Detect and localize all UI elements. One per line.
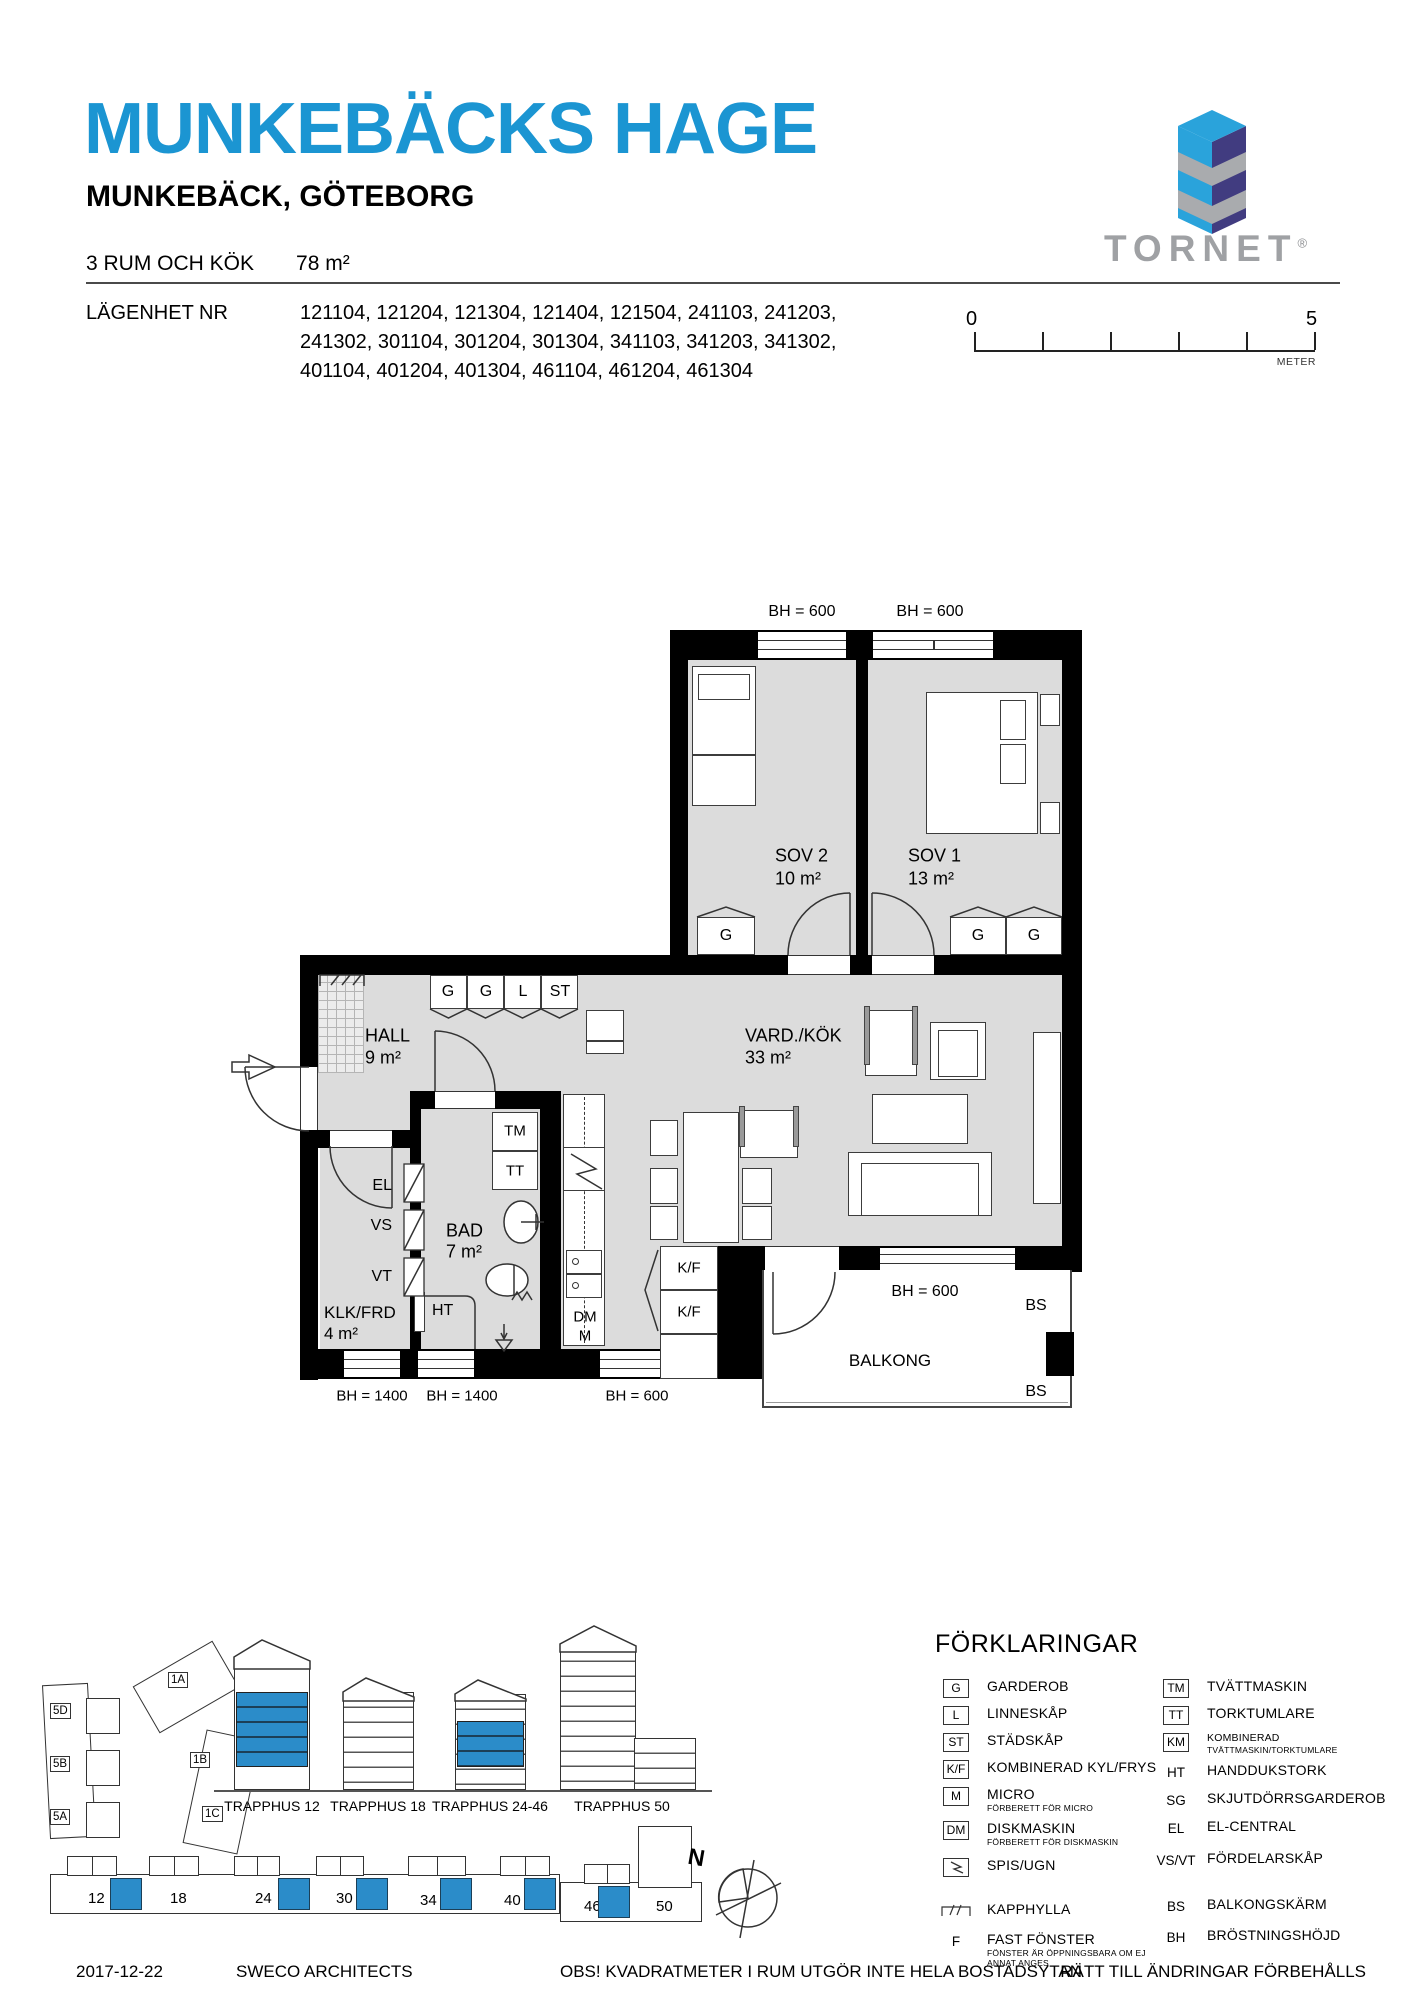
floorplan-sheet: { "header": { "title": "MUNKEBÄCKS HAGE"… [0, 0, 1414, 2000]
plan-label: BH = 1400 [336, 1388, 407, 1405]
site-block-label: 1A [168, 1672, 188, 1688]
legend-sublabel: TVÄTTMASKIN/TORKTUMLARE [1207, 1745, 1338, 1755]
legend-symbol-box: K/F [943, 1760, 969, 1779]
nightstand [1040, 694, 1060, 726]
plan-label: VT [372, 1268, 392, 1286]
plan-label: G [1028, 927, 1040, 945]
legend-text: KOMBINERADTVÄTTMASKIN/TORKTUMLARE [1207, 1732, 1338, 1755]
window-sov1 [873, 632, 993, 658]
plan-label: 13 m² [908, 869, 954, 890]
legend-row: K/FKOMBINERAD KYL/FRYS [935, 1759, 1157, 1779]
plan-label: TT [506, 1163, 524, 1180]
legend-text: KAPPHYLLA [987, 1901, 1071, 1917]
apartment-numbers-line1: 121104, 121204, 121304, 121404, 121504, … [300, 302, 836, 325]
plan-label: BH = 600 [768, 603, 835, 621]
chair [650, 1168, 678, 1204]
legend-row: KAPPHYLLA [935, 1901, 1157, 1921]
legend-label: SPIS/UGN [987, 1857, 1056, 1873]
scale-line [974, 350, 1315, 352]
apartment-type: 3 RUM OCH KÖK [86, 252, 254, 276]
hall-table [586, 1010, 624, 1054]
legend-text: KOMBINERAD KYL/FRYS [987, 1759, 1156, 1775]
bed-line [693, 754, 755, 756]
scale-start: 0 [966, 308, 977, 331]
st-symbol: ST [935, 1732, 977, 1752]
plan-label: VARD./KÖK [745, 1026, 842, 1047]
legend-label: DISKMASKIN [987, 1820, 1118, 1836]
apartment-type-row: 3 RUM OCH KÖK 78 m² [86, 252, 350, 276]
footprint-strip [560, 1882, 702, 1922]
scale-tick [1178, 332, 1180, 350]
apartment-numbers-line3: 401104, 401204, 401304, 461104, 461204, … [300, 360, 753, 383]
highlighted-unit [598, 1886, 630, 1918]
legend-symbol-box: TM [1163, 1679, 1189, 1698]
legend-label: LINNESKÅP [987, 1705, 1067, 1721]
plan-label: 33 m² [745, 1048, 791, 1069]
plan-label: K/F [677, 1260, 700, 1277]
plan-label: 7 m² [446, 1242, 482, 1263]
strip-number: 18 [170, 1890, 187, 1907]
strip-number: 34 [420, 1892, 437, 1909]
legend-row: BHBRÖSTNINGSHÖJD [1155, 1927, 1405, 1947]
legend-text: SPIS/UGN [987, 1857, 1056, 1873]
pillow [1000, 744, 1026, 784]
g-symbol: G [935, 1678, 977, 1698]
legend-sublabel: FÖRBERETT FÖR MICRO [987, 1803, 1093, 1813]
legend-label: SKJUTDÖRRSGARDEROB [1207, 1790, 1386, 1806]
legend-label: BRÖSTNINGSHÖJD [1207, 1927, 1340, 1943]
highlighted-unit [524, 1878, 556, 1910]
l-symbol: L [935, 1705, 977, 1725]
plan-label: L [519, 983, 528, 1001]
counter-dash-line [584, 1097, 585, 1343]
plan-label: DM [573, 1309, 596, 1326]
kapphylla-icon [940, 1902, 972, 1920]
pillow [698, 674, 750, 700]
site-block-label: 5D [50, 1703, 71, 1719]
plan-label: SOV 1 [908, 846, 961, 867]
footer-note: OBS! KVADRATMETER I RUM UTGÖR INTE HELA … [560, 1962, 1082, 1982]
highlighted-unit [278, 1878, 310, 1910]
site-block-label: 1C [202, 1806, 223, 1822]
apartment-numbers-line2: 241302, 301104, 301204, 301304, 341103, … [300, 331, 836, 354]
plan-label: G [720, 927, 732, 945]
legend-sublabel: FÖRBERETT FÖR DISKMASKIN [987, 1837, 1118, 1847]
footer-rights: RÄTT TILL ÄNDRINGAR FÖRBEHÅLLS [1060, 1962, 1366, 1982]
legend-row: TTTORKTUMLARE [1155, 1705, 1405, 1725]
strip-number: 12 [88, 1890, 105, 1907]
wall-bad-kitchen-divider [540, 1091, 561, 1349]
elevation-annex [634, 1738, 696, 1790]
legend-row: VS/VTFÖRDELARSKÅP [1155, 1850, 1405, 1870]
plan-label: BH = 600 [891, 1283, 958, 1301]
elevation-label: TRAPPHUS 18 [330, 1798, 426, 1814]
wall [300, 955, 318, 1067]
legend-text: EL-CENTRAL [1207, 1818, 1296, 1834]
legend-text: SKJUTDÖRRSGARDEROB [1207, 1790, 1386, 1806]
legend-symbol-box: DM [943, 1821, 969, 1840]
door-opening-sov1 [872, 955, 934, 975]
entry-arrow-icon [232, 1055, 275, 1079]
plan-label: BS [1025, 1383, 1046, 1401]
site-building-wing [86, 1802, 120, 1838]
highlighted-floors [236, 1692, 308, 1767]
legend-row: STSTÄDSKÅP [935, 1732, 1157, 1752]
legend-text: BRÖSTNINGSHÖJD [1207, 1927, 1340, 1943]
legend-label: HANDDUKSTORK [1207, 1762, 1327, 1778]
chair [742, 1168, 772, 1204]
spis-symbol [935, 1857, 977, 1877]
tm-symbol: TM [1155, 1678, 1197, 1698]
plan-label: BALKONG [849, 1351, 931, 1371]
door-opening-balcony [765, 1246, 839, 1272]
door-opening-entry [300, 1067, 318, 1130]
legend-text: BALKONGSKÄRM [1207, 1896, 1327, 1912]
legend-text: GARDEROB [987, 1678, 1069, 1694]
legend-row: GGARDEROB [935, 1678, 1157, 1698]
legend-label: GARDEROB [987, 1678, 1069, 1694]
legend-symbol-box: KM [1163, 1733, 1189, 1752]
spis-icon [943, 1858, 969, 1877]
plan-label: VS [371, 1217, 392, 1235]
balcony-screen-post [1046, 1332, 1074, 1376]
legend-label: KOMBINERAD [1207, 1732, 1338, 1744]
legend-right-column: TMTVÄTTMASKINTTTORKTUMLAREKMKOMBINERADTV… [1155, 1678, 1405, 1954]
scale-tick [1042, 332, 1044, 350]
km-symbol: KM [1155, 1732, 1197, 1752]
legend-label: TVÄTTMASKIN [1207, 1678, 1307, 1694]
plan-label: ST [550, 983, 570, 1001]
legend-label: BALKONGSKÄRM [1207, 1896, 1327, 1912]
strip-number: 40 [504, 1892, 521, 1909]
legend-title: FÖRKLARINGAR [935, 1630, 1138, 1659]
legend-text: STÄDSKÅP [987, 1732, 1063, 1748]
legend-text: TORKTUMLARE [1207, 1705, 1315, 1721]
plan-label: 4 m² [324, 1324, 358, 1344]
el-symbol: EL [1155, 1818, 1197, 1838]
legend-label: KAPPHYLLA [987, 1901, 1071, 1917]
legend-text: MICROFÖRBERETT FÖR MICRO [987, 1786, 1093, 1813]
window-living [880, 1248, 1015, 1270]
plan-label: 9 m² [365, 1048, 401, 1069]
plan-label: HALL [365, 1026, 410, 1047]
plan-label: BAD [446, 1221, 483, 1242]
towel-radiator [414, 1292, 425, 1332]
pillow [1000, 700, 1026, 740]
legend-label: STÄDSKÅP [987, 1732, 1063, 1748]
scale-tick [1110, 332, 1112, 350]
m-symbol: M [935, 1786, 977, 1806]
header-divider [86, 282, 1340, 284]
wall-pier [718, 1246, 762, 1379]
footer-date: 2017-12-22 [76, 1962, 163, 1982]
legend-left-column: GGARDEROBLLINNESKÅPSTSTÄDSKÅPK/FKOMBINER… [935, 1678, 1157, 1975]
plan-label: HT [432, 1302, 453, 1320]
window-sov2 [758, 632, 846, 658]
legend-row: LLINNESKÅP [935, 1705, 1157, 1725]
sg-symbol: SG [1155, 1790, 1197, 1810]
dining-table [683, 1112, 739, 1243]
page-title: MUNKEBÄCKS HAGE [84, 88, 817, 170]
legend-row: BSBALKONGSKÄRM [1155, 1896, 1405, 1916]
site-block-label: 1B [190, 1752, 210, 1768]
f-symbol: F [935, 1931, 977, 1951]
chair [650, 1206, 678, 1240]
tornet-logo-icon [1134, 96, 1304, 246]
armchair [740, 1110, 798, 1158]
legend-text: TVÄTTMASKIN [1207, 1678, 1307, 1694]
footprint-annex [638, 1826, 692, 1888]
door-opening-klk [330, 1130, 392, 1148]
apartment-area: 78 m² [296, 252, 350, 276]
legend-text: LINNESKÅP [987, 1705, 1067, 1721]
cabinet [660, 1334, 718, 1379]
door-opening-bad [435, 1091, 495, 1109]
plan-label: KLK/FRD [324, 1303, 396, 1323]
elevation-trapphus-50 [560, 1646, 636, 1790]
legend-row: HTHANDDUKSTORK [1155, 1762, 1405, 1782]
wall [300, 1130, 318, 1380]
sink-knob [572, 1258, 579, 1265]
door-opening-sov2 [788, 955, 850, 975]
wall-bedroom-divider [856, 655, 868, 957]
plan-label: G [480, 983, 492, 1001]
hall-table-line [587, 1040, 623, 1042]
legend-symbol-box: ST [943, 1733, 969, 1752]
vsvt-symbol: VS/VT [1155, 1850, 1197, 1870]
legend-row: ELEL-CENTRAL [1155, 1818, 1405, 1838]
sink-knob [572, 1282, 579, 1289]
footprint-bump [149, 1856, 199, 1876]
legend-symbol-box: G [943, 1679, 969, 1698]
legend-row: SPIS/UGN [935, 1857, 1157, 1877]
footprint-bump [500, 1856, 550, 1876]
legend-text: DISKMASKINFÖRBERETT FÖR DISKMASKIN [987, 1820, 1118, 1847]
ground-line [214, 1790, 712, 1792]
ht-symbol: HT [1155, 1762, 1197, 1782]
legend-row: SGSKJUTDÖRRSGARDEROB [1155, 1790, 1405, 1810]
plan-label: BS [1025, 1297, 1046, 1315]
compass-north-label: N [686, 1843, 707, 1872]
legend-label: FAST FÖNSTER [987, 1931, 1157, 1947]
armchair [930, 1022, 986, 1080]
legend-row: TMTVÄTTMASKIN [1155, 1678, 1405, 1698]
strip-number: 24 [255, 1890, 272, 1907]
highlighted-unit [440, 1878, 472, 1910]
page-subtitle: MUNKEBÄCK, GÖTEBORG [86, 180, 474, 214]
nightstand [1040, 802, 1060, 834]
coffee-table [872, 1094, 968, 1144]
plan-label: TM [504, 1123, 526, 1140]
washer-dryer-divider [493, 1150, 537, 1152]
legend-row: MMICROFÖRBERETT FÖR MICRO [935, 1786, 1157, 1813]
plan-label: EL [372, 1177, 392, 1195]
plan-label: M [579, 1328, 592, 1345]
footprint-bump [67, 1856, 117, 1876]
footprint-bump [234, 1856, 280, 1876]
legend-row: KMKOMBINERADTVÄTTMASKIN/TORKTUMLARE [1155, 1732, 1405, 1755]
kapphylla-symbol [935, 1901, 977, 1921]
scale-end: 5 [1306, 308, 1317, 331]
footer-architect: SWECO ARCHITECTS [236, 1962, 413, 1982]
elevation-trapphus-18 [343, 1692, 414, 1790]
sofa [848, 1152, 992, 1216]
legend-label: FÖRDELARSKÅP [1207, 1850, 1323, 1866]
compass-icon [716, 1860, 781, 1938]
brand-wordmark: TORNET® [1104, 228, 1307, 270]
wall [1062, 630, 1082, 1272]
dm-symbol: DM [935, 1820, 977, 1840]
scale-tick [974, 332, 976, 350]
plan-label: SOV 2 [775, 846, 828, 867]
site-block-label: 5B [50, 1756, 70, 1772]
scale-tick [1314, 332, 1316, 350]
plan-label: BH = 600 [896, 603, 963, 621]
armchair [865, 1010, 917, 1076]
site-building-wing [86, 1698, 120, 1734]
footprint-bump [584, 1864, 630, 1884]
legend-label: TORKTUMLARE [1207, 1705, 1315, 1721]
strip-number: 30 [336, 1890, 353, 1907]
highlighted-floors [457, 1721, 524, 1767]
hall-mat-hatch [318, 973, 364, 1073]
strip-number: 50 [656, 1898, 673, 1915]
site-block-label: 5A [50, 1809, 70, 1825]
highlighted-unit [110, 1878, 142, 1910]
apartment-number-label: LÄGENHET NR [86, 302, 228, 325]
legend-symbol-box: TT [1163, 1706, 1189, 1725]
highlighted-unit [356, 1878, 388, 1910]
legend-label: KOMBINERAD KYL/FRYS [987, 1759, 1156, 1775]
tv-bench [1033, 1032, 1061, 1204]
legend-row: DMDISKMASKINFÖRBERETT FÖR DISKMASKIN [935, 1820, 1157, 1847]
scale-unit: METER [1268, 356, 1316, 368]
legend-symbol-box: M [943, 1787, 969, 1806]
legend-text: FÖRDELARSKÅP [1207, 1850, 1323, 1866]
plan-label: K/F [677, 1304, 700, 1321]
plan-label: G [442, 983, 454, 1001]
stove [563, 1147, 605, 1191]
bh-symbol: BH [1155, 1927, 1197, 1947]
wall [670, 630, 688, 975]
legend-text: HANDDUKSTORK [1207, 1762, 1327, 1778]
legend-symbol-box: L [943, 1706, 969, 1725]
wall [300, 955, 1082, 975]
bs-symbol: BS [1155, 1896, 1197, 1916]
plan-label: G [972, 927, 984, 945]
tt-symbol: TT [1155, 1705, 1197, 1725]
footprint-bump [408, 1856, 466, 1876]
sink-divider [567, 1273, 601, 1275]
legend-label: EL-CENTRAL [1207, 1818, 1296, 1834]
window-klk [344, 1351, 400, 1377]
chair [742, 1206, 772, 1240]
elevation-label: TRAPPHUS 24-46 [432, 1798, 548, 1814]
elevation-label: TRAPPHUS 50 [574, 1798, 670, 1814]
window-bad [418, 1351, 474, 1377]
elevation-label: TRAPPHUS 12 [224, 1798, 320, 1814]
legend-label: MICRO [987, 1786, 1093, 1802]
plan-label: BH = 600 [606, 1388, 669, 1405]
plan-label: 10 m² [775, 869, 821, 890]
kf-symbol: K/F [935, 1759, 977, 1779]
footprint-bump [316, 1856, 364, 1876]
scale-tick [1246, 332, 1248, 350]
chair [650, 1120, 678, 1156]
plan-label: BH = 1400 [426, 1388, 497, 1405]
site-building-wing [86, 1750, 120, 1786]
